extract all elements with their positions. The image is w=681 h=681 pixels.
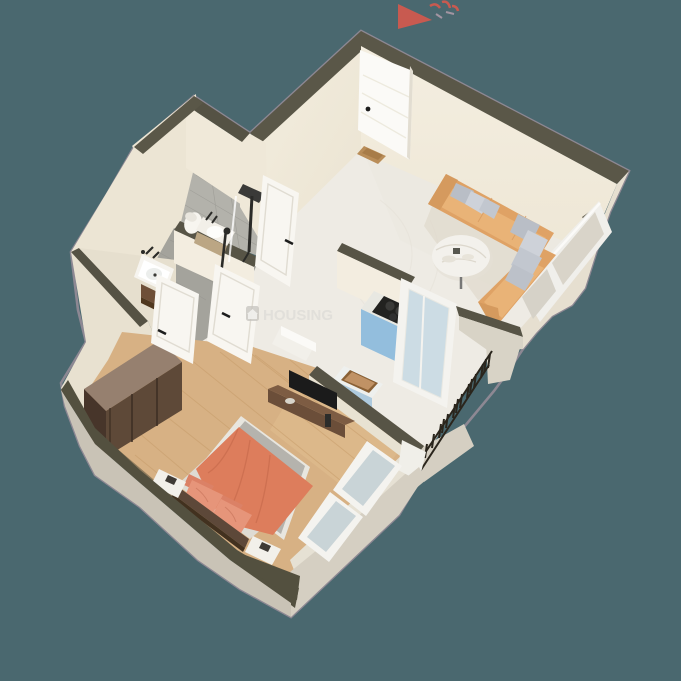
svg-text:HOUSING: HOUSING — [263, 307, 333, 324]
